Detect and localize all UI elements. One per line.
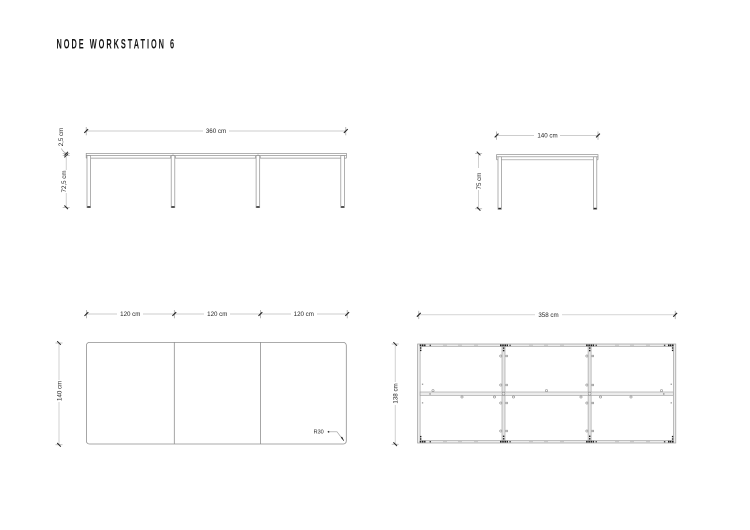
svg-text:140 cm: 140 cm <box>537 133 557 140</box>
svg-text:2,5 cm: 2,5 cm <box>58 128 65 147</box>
svg-text:360 cm: 360 cm <box>206 128 226 135</box>
svg-text:358 cm: 358 cm <box>538 312 558 319</box>
svg-text:140 cm: 140 cm <box>57 381 64 401</box>
svg-text:R30: R30 <box>314 430 324 436</box>
svg-text:138 cm: 138 cm <box>393 383 400 403</box>
svg-text:120 cm: 120 cm <box>207 311 227 318</box>
svg-text:72,5 cm: 72,5 cm <box>61 170 68 192</box>
svg-text:NODE WORKSTATION 6: NODE WORKSTATION 6 <box>57 37 177 52</box>
svg-text:120 cm: 120 cm <box>120 311 140 318</box>
svg-text:120 cm: 120 cm <box>294 311 314 318</box>
svg-text:75 cm: 75 cm <box>476 173 483 190</box>
